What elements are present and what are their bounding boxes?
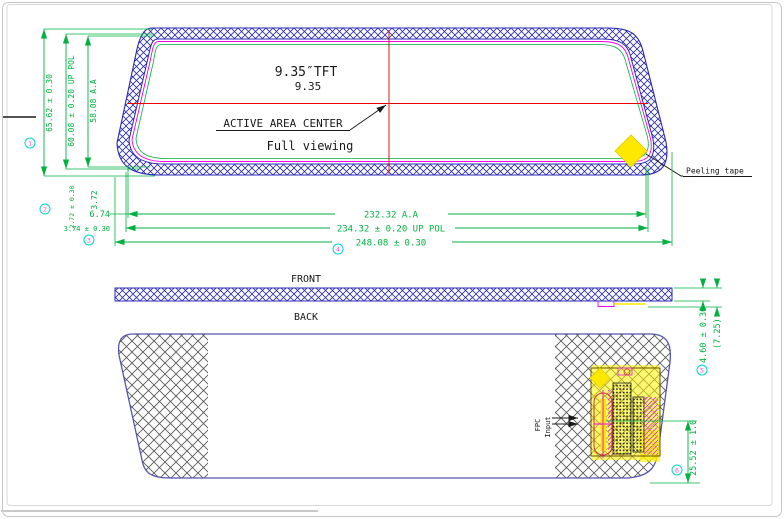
back-view: FPC Input 25.52 ± 1.0	[115, 333, 700, 483]
full-viewing-label: Full viewing	[267, 139, 354, 153]
dim-height-aa: 58.08 A.A	[89, 79, 98, 123]
svg-text:6: 6	[675, 466, 679, 474]
back-left-hatch	[115, 333, 208, 480]
lcd-panel-drawing-canvas: 9.35″TFT 9.35 ACTIVE AREA CENTER Full vi…	[0, 0, 784, 519]
dim-total-thickness: (7.25)	[713, 318, 723, 349]
panel-size-label: 9.35″TFT	[275, 65, 338, 80]
fpc-input-label-1: FPC	[534, 419, 542, 432]
cad-drawing-page: 9.35″TFT 9.35 ACTIVE AREA CENTER Full vi…	[0, 0, 784, 519]
dim-height-pol: 60.08 ± 0.20 UP POL	[67, 55, 76, 147]
dim-gap-left-pol: 3.74 ± 0.30	[64, 225, 110, 233]
svg-text:1: 1	[28, 139, 32, 147]
fpc-input-label-2: Input	[544, 416, 552, 437]
peeling-tape-label: Peeling tape	[686, 167, 744, 176]
fpc-fold-outline	[598, 301, 614, 307]
dim-gap-left-aa: 6.74	[90, 210, 110, 220]
side-view-glass-bar	[115, 288, 672, 301]
fpc-stiffener-2	[633, 397, 644, 452]
dim-width-outline: 248.08 ± 0.30	[356, 239, 426, 249]
panel-size-value: 9.35	[295, 80, 322, 93]
dim-gap-bottom-pol: 2.72 ± 0.30	[68, 185, 76, 228]
svg-text:4: 4	[336, 245, 340, 253]
svg-text:3: 3	[87, 236, 91, 244]
top-view: 9.35″TFT 9.35 ACTIVE AREA CENTER Full vi…	[117, 28, 752, 177]
dim-height-outline: 65.62 ± 0.30	[45, 74, 54, 132]
fpc-connector-detail	[590, 365, 660, 462]
front-label: FRONT	[291, 274, 321, 285]
dim-thickness: 4.60 ± 0.30	[699, 307, 709, 363]
dim-width-pol: 234.32 ± 0.20 UP POL	[337, 225, 445, 235]
dim-gap-bottom-aa: 3.72	[90, 190, 99, 209]
active-area-center-label: ACTIVE AREA CENTER	[223, 117, 343, 130]
panel-inner-edge	[129, 39, 654, 164]
fpc-stiffener-1	[613, 383, 631, 454]
back-label: BACK	[294, 312, 318, 323]
dim-fpc-offset: 25.52 ± 1.0	[689, 420, 699, 476]
svg-text:5: 5	[700, 366, 704, 374]
svg-text:2: 2	[43, 205, 47, 213]
dim-width-aa: 232.32 A.A	[364, 211, 419, 221]
fpc-magenta-hatch	[644, 397, 658, 455]
